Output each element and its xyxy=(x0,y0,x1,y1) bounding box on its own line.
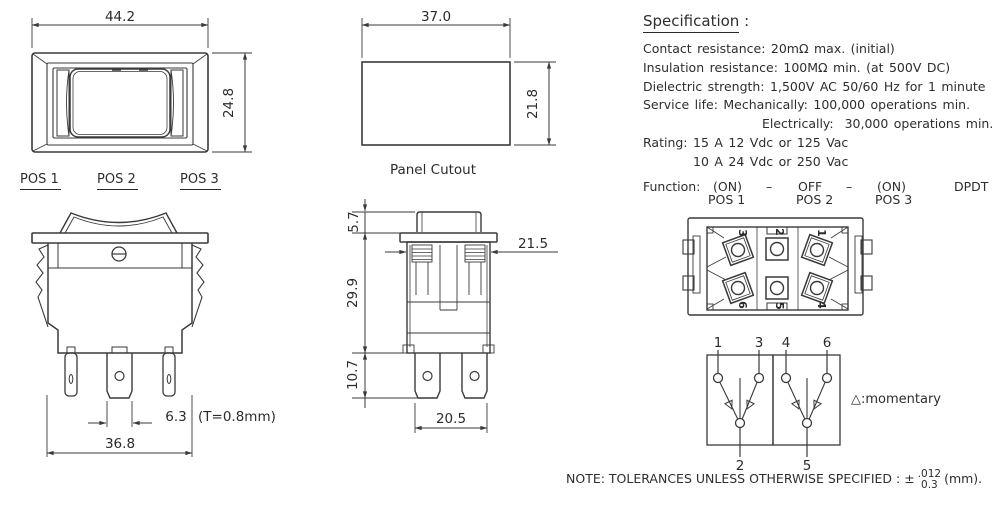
rocker-top[interactable] xyxy=(60,213,177,233)
side-width-dimension: 21.5 xyxy=(385,236,558,252)
spec-rating-1: Rating: 15 A 12 Vdc or 125 Vac xyxy=(643,134,1000,153)
specification-colon: : xyxy=(739,12,749,30)
tolerance-note: NOTE: TOLERANCES UNLESS OTHERWISE SPECIF… xyxy=(566,471,982,491)
terminal-4-number: 4 xyxy=(815,301,828,309)
circuit-schematic: 1 3 4 6 2 5 xyxy=(695,332,860,477)
pole1-contacts xyxy=(714,350,764,457)
terminal-width-dimension: 6.3 (T=0.8mm) xyxy=(88,401,276,427)
terminal-3[interactable] xyxy=(723,235,754,266)
front-height-dim: 24.8 xyxy=(221,88,237,118)
schematic-terminal-4: 4 xyxy=(782,335,791,351)
terminal-5-number: 5 xyxy=(773,302,786,310)
side-body xyxy=(403,242,494,353)
terminal-1[interactable] xyxy=(802,235,833,266)
function-type: DPDT xyxy=(954,179,988,194)
mounting-flange xyxy=(32,233,208,243)
function-label: Function: xyxy=(643,179,700,194)
spec-insulation-resistance: Insulation resistance: 100MΩ min. (at 50… xyxy=(643,59,1000,78)
technical-drawing-canvas: 44.2 24.8 POS 1 POS 2 POS 3 xyxy=(0,0,1000,506)
terminal-width-dim: 6.3 xyxy=(165,409,186,425)
terminal-3-number: 3 xyxy=(736,229,749,237)
terminal-6-number: 6 xyxy=(736,301,749,309)
width-dimension: 44.2 xyxy=(32,9,208,48)
pos3-label: POS 3 xyxy=(180,172,221,190)
momentary-triangle-icon xyxy=(725,400,735,410)
front-switch-drawing: 6.3 (T=0.8mm) 36.8 xyxy=(0,195,300,475)
front-width-dim: 44.2 xyxy=(105,9,135,25)
body-width-dimension: 36.8 xyxy=(47,395,192,457)
body-height-dim: 29.9 xyxy=(345,278,361,308)
function-pos3: POS 3 xyxy=(875,192,912,207)
specification-lines: Contact resistance: 20mΩ max. (initial) … xyxy=(643,40,1000,172)
schematic-terminal-1: 1 xyxy=(714,335,723,351)
terminal-span-dimension: 20.5 xyxy=(415,403,487,433)
side-terminals xyxy=(415,353,487,398)
terminal-2-number: 2 xyxy=(773,228,786,236)
actuator-height-dim: 5.7 xyxy=(346,211,362,232)
side-actuator[interactable] xyxy=(417,212,481,232)
pos2-label: POS 2 xyxy=(97,172,138,190)
pole2-contacts xyxy=(782,350,832,457)
side-body-width-dim: 21.5 xyxy=(518,236,548,252)
momentary-triangle-icon xyxy=(811,400,821,410)
specification-heading-row: Specification : xyxy=(643,12,1000,30)
specification-heading: Specification xyxy=(643,12,739,33)
spec-dielectric-strength: Dielectric strength: 1,500V AC 50/60 Hz … xyxy=(643,78,1000,97)
function-dash1: – xyxy=(766,179,772,194)
panel-cutout-caption: Panel Cutout xyxy=(390,162,476,178)
terminals xyxy=(65,347,175,398)
height-dimension: 24.8 xyxy=(212,53,252,152)
spec-service-life-mechanical: Service life: Mechanically: 100,000 oper… xyxy=(643,96,1000,115)
terminal-6[interactable] xyxy=(723,273,754,304)
cutout-height-dim: 21.8 xyxy=(525,89,541,119)
cutout-rect xyxy=(362,62,510,145)
cutout-width-dimension: 37.0 xyxy=(362,9,510,58)
rocker-actuator[interactable] xyxy=(57,69,183,137)
tolerance-note-suffix: (mm). xyxy=(944,471,982,486)
function-pos1: POS 1 xyxy=(708,192,745,207)
bottom-view-drawing: 3 2 1 6 5 4 xyxy=(680,212,875,324)
momentary-note: △:momentary xyxy=(851,392,941,407)
body-width-dim: 36.8 xyxy=(105,436,135,452)
function-pos2: POS 2 xyxy=(796,192,833,207)
panel-cutout-drawing: 37.0 21.8 Panel Cutout xyxy=(330,0,580,190)
tolerance-note-text: NOTE: TOLERANCES UNLESS OTHERWISE SPECIF… xyxy=(566,471,915,486)
side-flange xyxy=(400,233,497,242)
specification-block: Specification : Contact resistance: 20mΩ… xyxy=(643,12,1000,172)
spec-rating-2: 10 A 24 Vdc or 250 Vac xyxy=(643,153,1000,172)
schematic-terminal-6: 6 xyxy=(823,335,832,351)
terminal-span-dim: 20.5 xyxy=(436,411,466,427)
terminal-4[interactable] xyxy=(802,273,833,304)
switch-body xyxy=(48,243,192,353)
thickness-note: (T=0.8mm) xyxy=(198,409,276,425)
snap-clips xyxy=(36,245,204,327)
cutout-width-dim: 37.0 xyxy=(421,9,451,25)
function-dash2: – xyxy=(846,179,852,194)
terminal-1-number: 1 xyxy=(815,229,828,237)
pos1-label: POS 1 xyxy=(20,172,61,190)
tolerance-fraction: .012 0.3 xyxy=(918,469,941,491)
spec-contact-resistance: Contact resistance: 20mΩ max. (initial) xyxy=(643,40,1000,59)
schematic-terminal-3: 3 xyxy=(755,335,764,351)
side-view-drawing: 5.7 29.9 10.7 21.5 20.5 xyxy=(340,195,575,475)
terminal-length-dim: 10.7 xyxy=(345,360,361,390)
front-view-drawing: 44.2 24.8 xyxy=(0,0,270,200)
spec-service-life-electrical: Electrically: 30,000 operations min. xyxy=(643,115,1000,134)
tolerance-bottom: 0.3 xyxy=(921,480,938,491)
cutout-height-dimension: 21.8 xyxy=(514,62,556,145)
